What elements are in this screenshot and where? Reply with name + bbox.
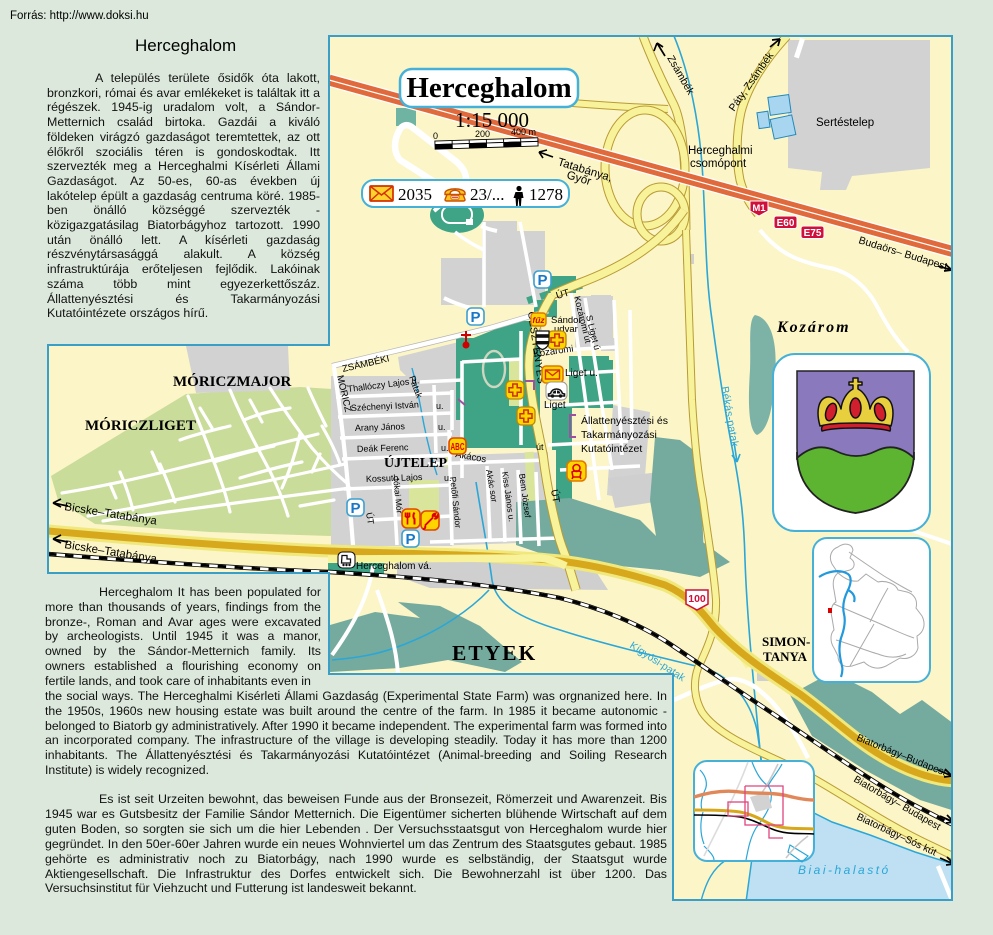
svg-text:Deák Ferenc: Deák Ferenc <box>357 442 409 454</box>
svg-text:P: P <box>537 272 547 289</box>
svg-text:Herceghalom: Herceghalom <box>406 72 571 104</box>
svg-text:0: 0 <box>433 131 438 141</box>
svg-text:Állattenyésztési és: Állattenyésztési és <box>581 414 668 427</box>
svg-text:u.: u. <box>436 401 444 411</box>
svg-text:csomópont: csomópont <box>690 158 747 170</box>
svg-text:ETYEK: ETYEK <box>452 641 537 665</box>
svg-text:fűz: fűz <box>532 315 545 325</box>
svg-text:u.: u. <box>441 443 449 453</box>
svg-text:Kozárom: Kozárom <box>776 319 851 336</box>
svg-text:Liget: Liget <box>544 400 566 411</box>
svg-text:E60: E60 <box>777 218 795 229</box>
svg-text:u.: u. <box>438 422 446 432</box>
svg-text:Herceghalom vá.: Herceghalom vá. <box>356 561 432 572</box>
svg-text:100: 100 <box>688 593 706 605</box>
svg-text:P: P <box>350 500 360 517</box>
svg-text:Kutatóintézet: Kutatóintézet <box>581 443 642 455</box>
svg-text:P: P <box>470 309 480 326</box>
svg-text:200: 200 <box>475 129 490 139</box>
svg-text:M1: M1 <box>752 203 766 214</box>
svg-text:2035: 2035 <box>398 185 432 204</box>
svg-text:MÓRICZMAJOR: MÓRICZMAJOR <box>173 373 291 390</box>
svg-text:23/...: 23/... <box>470 185 504 204</box>
svg-text:1278: 1278 <box>529 185 563 204</box>
svg-text:MÓRICZLIGET: MÓRICZLIGET <box>85 417 196 434</box>
svg-text:ABC: ABC <box>451 442 465 453</box>
svg-text:Sertéstelep: Sertéstelep <box>816 117 874 129</box>
svg-text:E75: E75 <box>804 228 822 239</box>
svg-text:Liget u.: Liget u. <box>565 368 598 379</box>
svg-text:ÚJTELEP: ÚJTELEP <box>384 454 447 471</box>
svg-text:út: út <box>536 442 544 452</box>
svg-text:ÚT: ÚT <box>364 512 376 526</box>
svg-text:TANYA: TANYA <box>763 649 808 664</box>
svg-text:Arany János: Arany János <box>355 421 406 433</box>
svg-text:Takarmányozási: Takarmányozási <box>581 429 657 441</box>
svg-text:SIMON-: SIMON- <box>762 634 810 649</box>
svg-text:Herceghalmi: Herceghalmi <box>688 145 753 157</box>
svg-text:P: P <box>405 531 415 548</box>
svg-text:400 m: 400 m <box>511 127 536 137</box>
svg-text:Biai-halastó: Biai-halastó <box>798 863 891 877</box>
